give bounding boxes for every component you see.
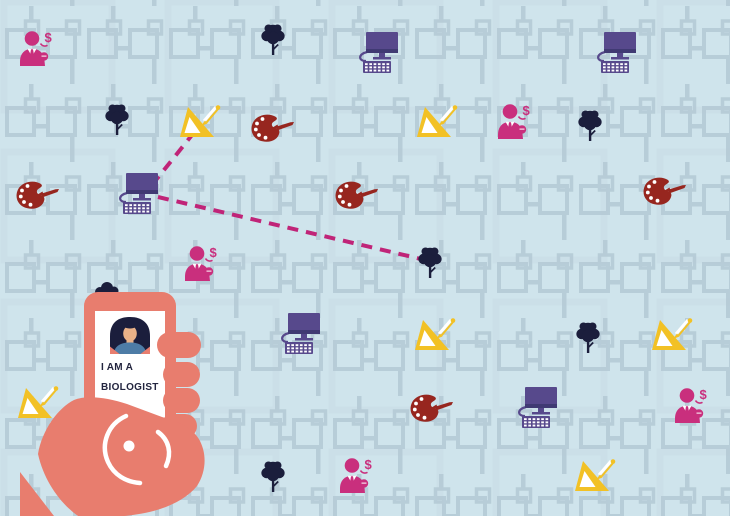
profile-avatar <box>110 317 150 354</box>
tree-icon <box>575 108 605 144</box>
profile-card-line1: I AM A <box>101 358 159 378</box>
tree-icon <box>102 102 132 138</box>
palette-icon <box>642 176 688 206</box>
computer-icon <box>277 311 323 355</box>
phone-home-button <box>124 441 135 452</box>
person-dollar-icon <box>338 455 378 495</box>
palette-icon <box>334 180 380 210</box>
palette-icon <box>250 113 296 143</box>
computer-icon <box>514 385 560 429</box>
tree-icon <box>573 320 603 356</box>
palette-icon <box>15 180 61 210</box>
palette-icon <box>409 393 455 423</box>
set-square-icon <box>573 458 617 498</box>
illustration-canvas: I AM A BIOLOGIST <box>0 0 730 516</box>
tree-icon <box>258 459 288 495</box>
person-dollar-icon <box>496 101 536 141</box>
tree-icon <box>258 22 288 58</box>
set-square-icon <box>415 104 459 144</box>
set-square-icon <box>178 104 222 144</box>
person-dollar-icon <box>18 28 58 68</box>
set-square-icon <box>413 317 457 357</box>
profile-card-line2: BIOLOGIST <box>101 378 159 398</box>
tree-icon <box>415 245 445 281</box>
set-square-icon <box>650 317 694 357</box>
person-dollar-icon <box>673 385 713 425</box>
profile-card-text: I AM A BIOLOGIST <box>101 358 159 398</box>
computer-icon <box>593 30 639 74</box>
computer-icon <box>355 30 401 74</box>
computer-icon <box>115 171 161 215</box>
